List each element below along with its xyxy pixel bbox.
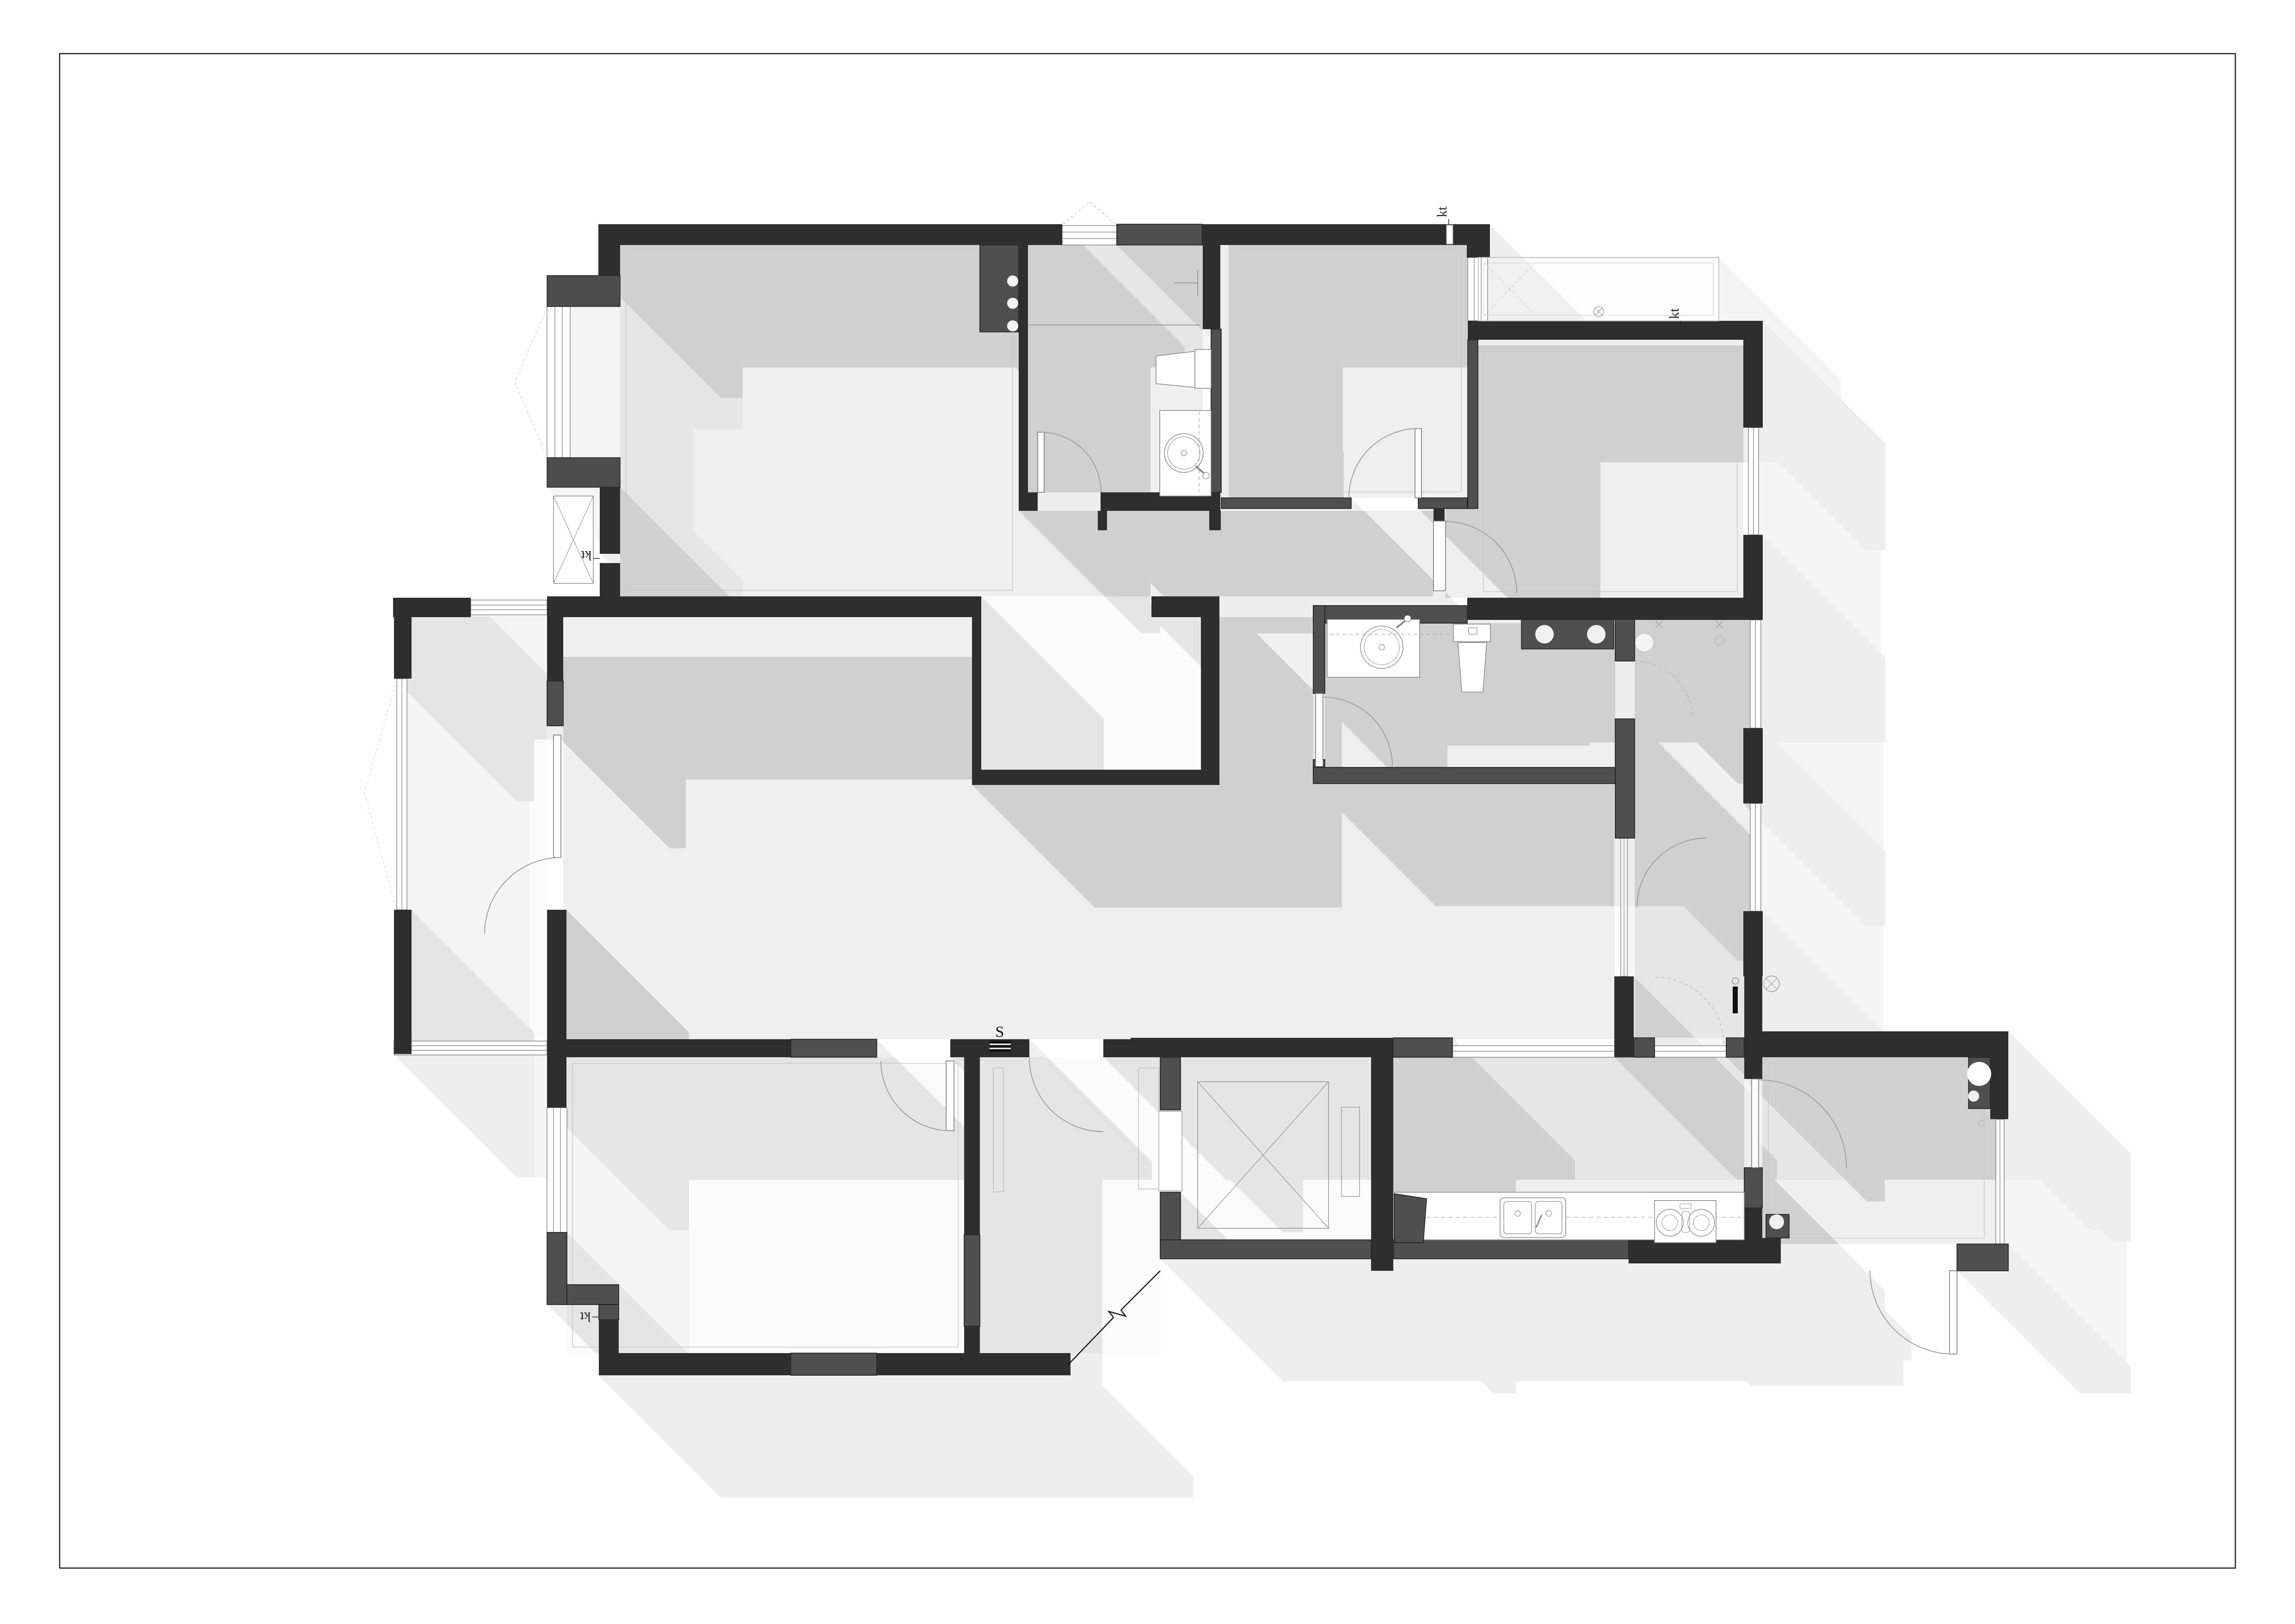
svg-text:S: S (996, 1023, 1004, 1041)
svg-text:kt: kt (580, 1309, 591, 1324)
svg-text:kt: kt (1434, 206, 1450, 217)
svg-text:kt: kt (581, 548, 592, 563)
svg-text:kt: kt (1667, 308, 1682, 319)
